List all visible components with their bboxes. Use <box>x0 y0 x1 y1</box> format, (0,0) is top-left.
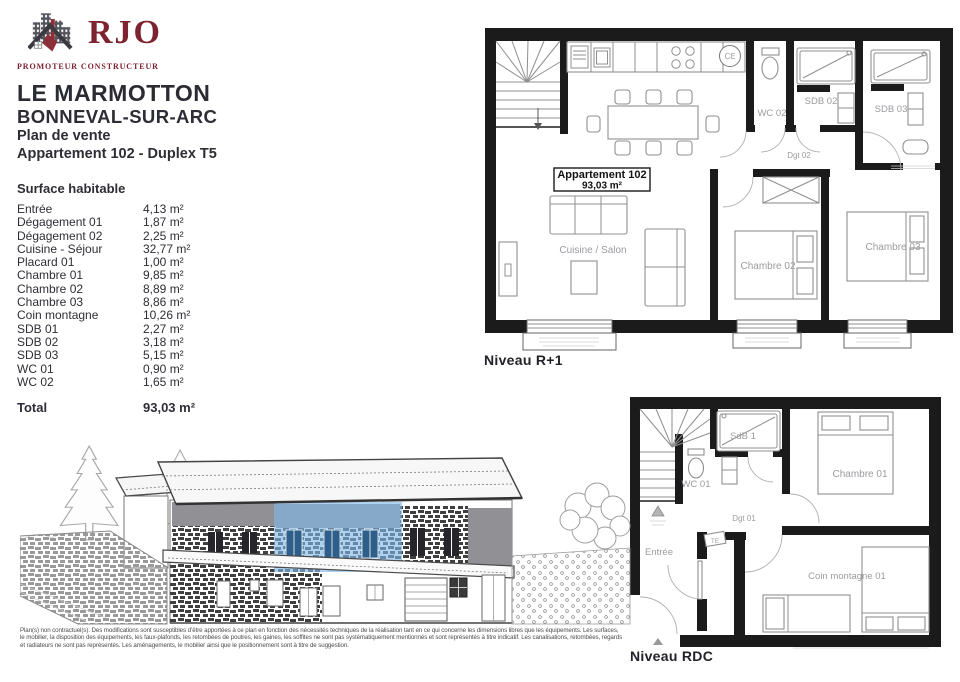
rdc-door-leaf <box>698 561 702 599</box>
r1-placard <box>763 177 819 203</box>
ce-label: CE <box>724 52 735 61</box>
total-value: 93,03 m² <box>143 400 195 415</box>
rdc-bed-single <box>763 595 850 632</box>
project-location: BONNEVAL-SUR-ARC <box>17 106 217 128</box>
r1-sdb02-shower-icon <box>797 48 855 84</box>
surface-table-title: Surface habitable <box>17 181 125 196</box>
table-row: Chambre 019,85 m² <box>17 269 257 282</box>
total-label: Total <box>17 400 143 415</box>
surface-table: Entrée4,13 m² Dégagement 011,87 m² Dégag… <box>17 203 257 389</box>
disclaimer-line: Plan(s) non contractuel(s). Des modifica… <box>20 627 626 634</box>
room-label-cuisine-salon: Cuisine / Salon <box>559 245 626 256</box>
room-label-entree: Entrée <box>645 547 673 558</box>
surface-total-row: Total 93,03 m² <box>17 400 257 415</box>
room-label-sdb03: SDB 03 <box>875 104 908 115</box>
r1-sofa-right <box>645 229 685 306</box>
rjo-logo-icon <box>28 6 80 58</box>
rdc-wc01-toilet-icon <box>688 449 704 478</box>
table-row: SDB 023,18 m² <box>17 336 257 349</box>
room-label-wc01: WC 01 <box>681 479 710 490</box>
table-row: Coin montagne10,26 m² <box>17 309 257 322</box>
r1-unit-label-box: Appartement 102 93,03 m² <box>554 168 650 192</box>
disclaimer-line: et radiateurs ne sont pas représentés. L… <box>20 642 626 649</box>
disclaimer-line: le mobilier, la disposition des équipeme… <box>20 634 626 641</box>
floor-plan-r1: CE <box>483 24 959 354</box>
caption-niveau-r1: Niveau R+1 <box>484 352 563 368</box>
rdc-bed-chambre01 <box>818 412 893 494</box>
floor-plan-rdc: WC 01 SdB 1 Chambre 01 Dgt 01 TE Entrée … <box>630 397 959 649</box>
r1-coffee-table <box>571 261 597 294</box>
rdc-hopper-symbol <box>650 506 666 525</box>
unit-box-area: 93,03 m² <box>582 181 623 192</box>
table-row: Dégagement 022,25 m² <box>17 230 257 243</box>
caption-niveau-rdc: Niveau RDC <box>630 648 713 664</box>
r1-sdb03-shower-icon <box>871 50 930 83</box>
bush-icon <box>560 483 630 549</box>
table-row: Placard 011,00 m² <box>17 256 257 269</box>
r1-tv-unit <box>499 242 517 296</box>
r1-kitchen-counter <box>567 42 745 72</box>
room-label-wc02: WC 02 <box>757 108 786 119</box>
table-row: WC 010,90 m² <box>17 363 257 376</box>
table-row: Chambre 028,89 m² <box>17 283 257 296</box>
room-label-chambre02: Chambre 02 <box>740 261 795 272</box>
table-row: Cuisine - Séjour32,77 m² <box>17 243 257 256</box>
r1-window <box>733 320 801 348</box>
plan-de-vente-page: { "brand": { "name": "RJO", "tagline": "… <box>0 0 960 682</box>
table-row: Entrée4,13 m² <box>17 203 257 216</box>
table-row: SDB 035,15 m² <box>17 349 257 362</box>
room-label-te: TE <box>711 538 720 545</box>
building-elevation <box>20 438 632 626</box>
rdc-bed-double <box>862 547 929 632</box>
room-label-coin-montagne: Coin montagne 01 <box>808 571 886 582</box>
r1-wc02-toilet-icon <box>762 48 779 79</box>
brand-tagline: PROMOTEUR CONSTRUCTEUR <box>17 62 159 71</box>
r1-stairs <box>496 41 560 127</box>
room-label-sdb1: SdB 1 <box>730 431 756 442</box>
document-type: Plan de vente <box>17 128 110 144</box>
brand-name: RJO <box>88 14 162 52</box>
room-label-dgt01: Dgt 01 <box>732 514 756 523</box>
r1-ce-symbol: CE <box>720 46 741 67</box>
rdc-entry-arrow-icon <box>653 638 663 645</box>
unit-box-title: Appartement 102 <box>557 169 646 181</box>
r1-sdb03-basin-icon <box>903 140 928 154</box>
disclaimer: Plan(s) non contractuel(s). Des modifica… <box>20 627 626 649</box>
rjo-logo: RJO <box>28 6 162 58</box>
room-label-dgt02: Dgt 02 <box>787 151 811 160</box>
r1-sofa-top <box>550 196 627 234</box>
gravel-terrain <box>512 548 630 624</box>
r1-window <box>523 320 616 350</box>
table-row: SDB 012,27 m² <box>17 323 257 336</box>
table-row: Dégagement 011,87 m² <box>17 216 257 229</box>
table-row: Chambre 038,86 m² <box>17 296 257 309</box>
garage-door-icon <box>405 578 447 621</box>
room-label-chambre03: Chambre 03 <box>865 242 920 253</box>
room-label-chambre01: Chambre 01 <box>832 469 887 480</box>
unit-title: Appartement 102 - Duplex T5 <box>17 146 217 162</box>
r1-window <box>844 320 911 348</box>
project-title: LE MARMOTTON <box>17 80 210 107</box>
r1-dining-set <box>587 90 719 155</box>
room-label-sdb02: SDB 02 <box>805 96 838 107</box>
table-row: WC 021,65 m² <box>17 376 257 389</box>
